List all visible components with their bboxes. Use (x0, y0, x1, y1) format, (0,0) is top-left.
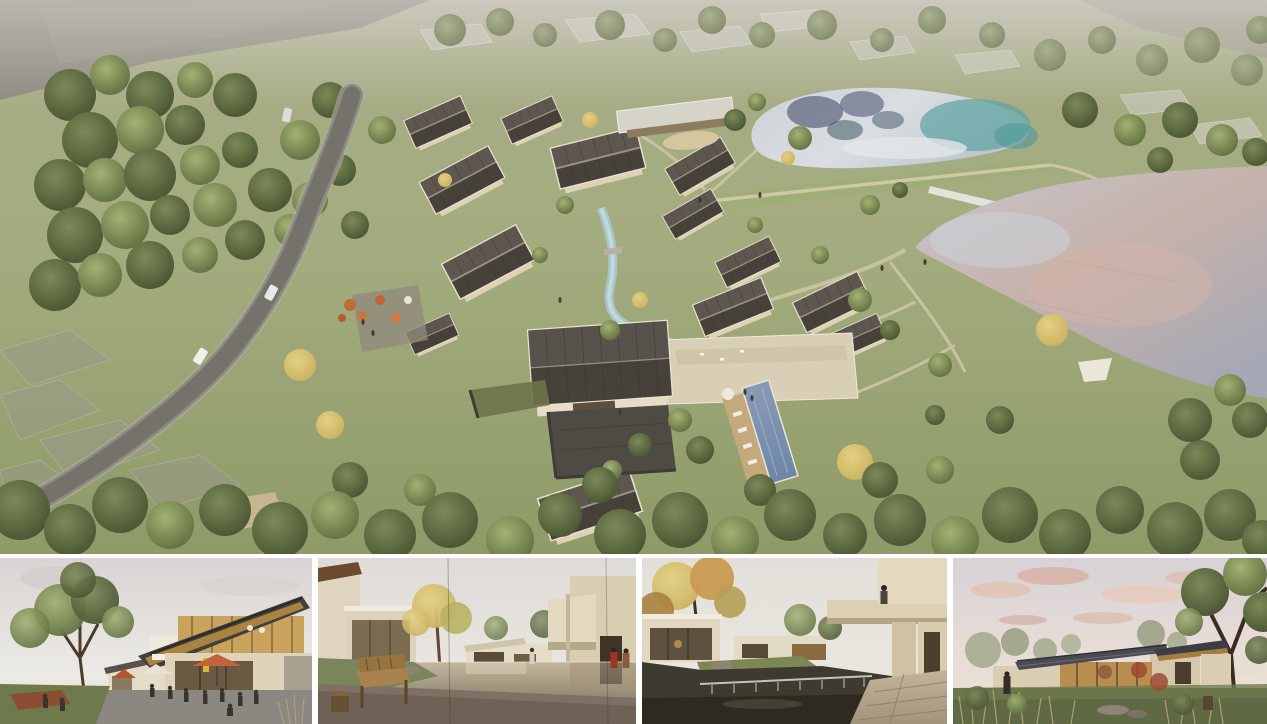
stump (1203, 696, 1213, 710)
dusk-pavilion-render (953, 558, 1267, 724)
umbrella-icon (722, 388, 734, 400)
rock (1097, 705, 1129, 715)
aerial-masterplan-render (0, 0, 1267, 554)
rendering-board (0, 0, 1267, 724)
left-pavilion (642, 614, 722, 662)
umbrella-icon (375, 295, 385, 305)
person (1004, 671, 1011, 694)
plaza-cafe-render (0, 558, 312, 724)
waterfall-pond-render (642, 558, 947, 724)
thumbnail-strip (0, 558, 1267, 724)
courtyard-pond-render (318, 558, 636, 724)
